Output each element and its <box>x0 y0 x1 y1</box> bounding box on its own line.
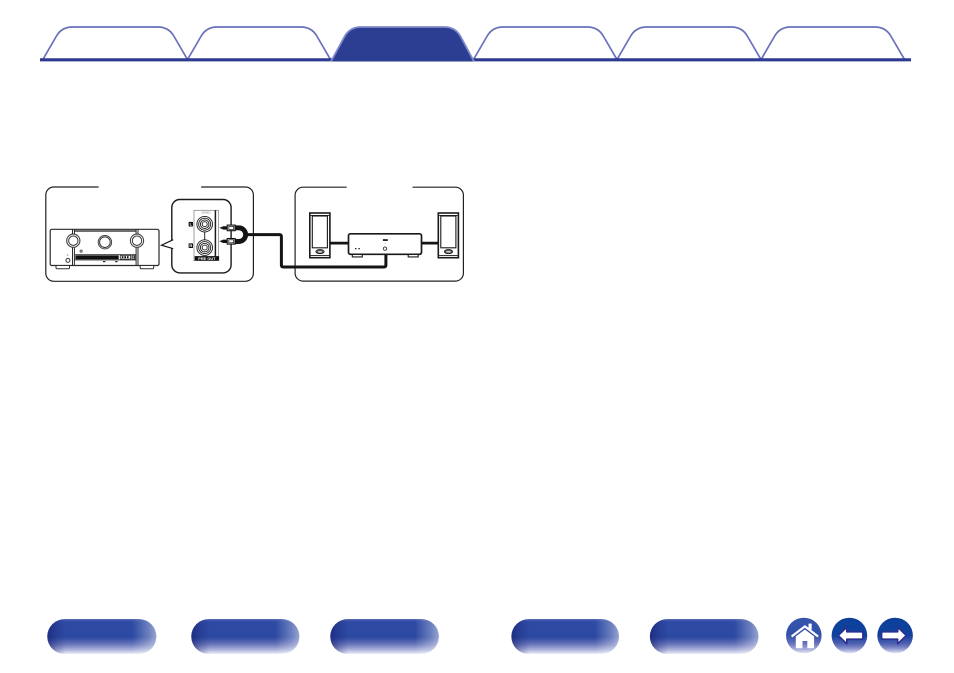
svg-text:ZONE2: ZONE2 <box>201 211 211 215</box>
svg-text:PRE OUT: PRE OUT <box>198 256 216 261</box>
svg-text:R: R <box>189 243 192 248</box>
